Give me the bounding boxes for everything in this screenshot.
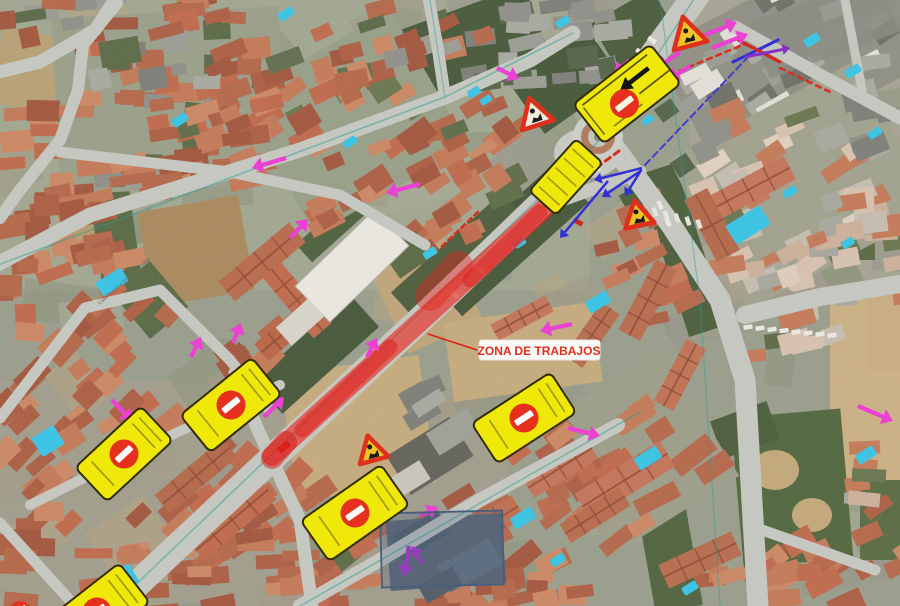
svg-text:ZONA DE TRABAJOS: ZONA DE TRABAJOS	[478, 344, 601, 358]
